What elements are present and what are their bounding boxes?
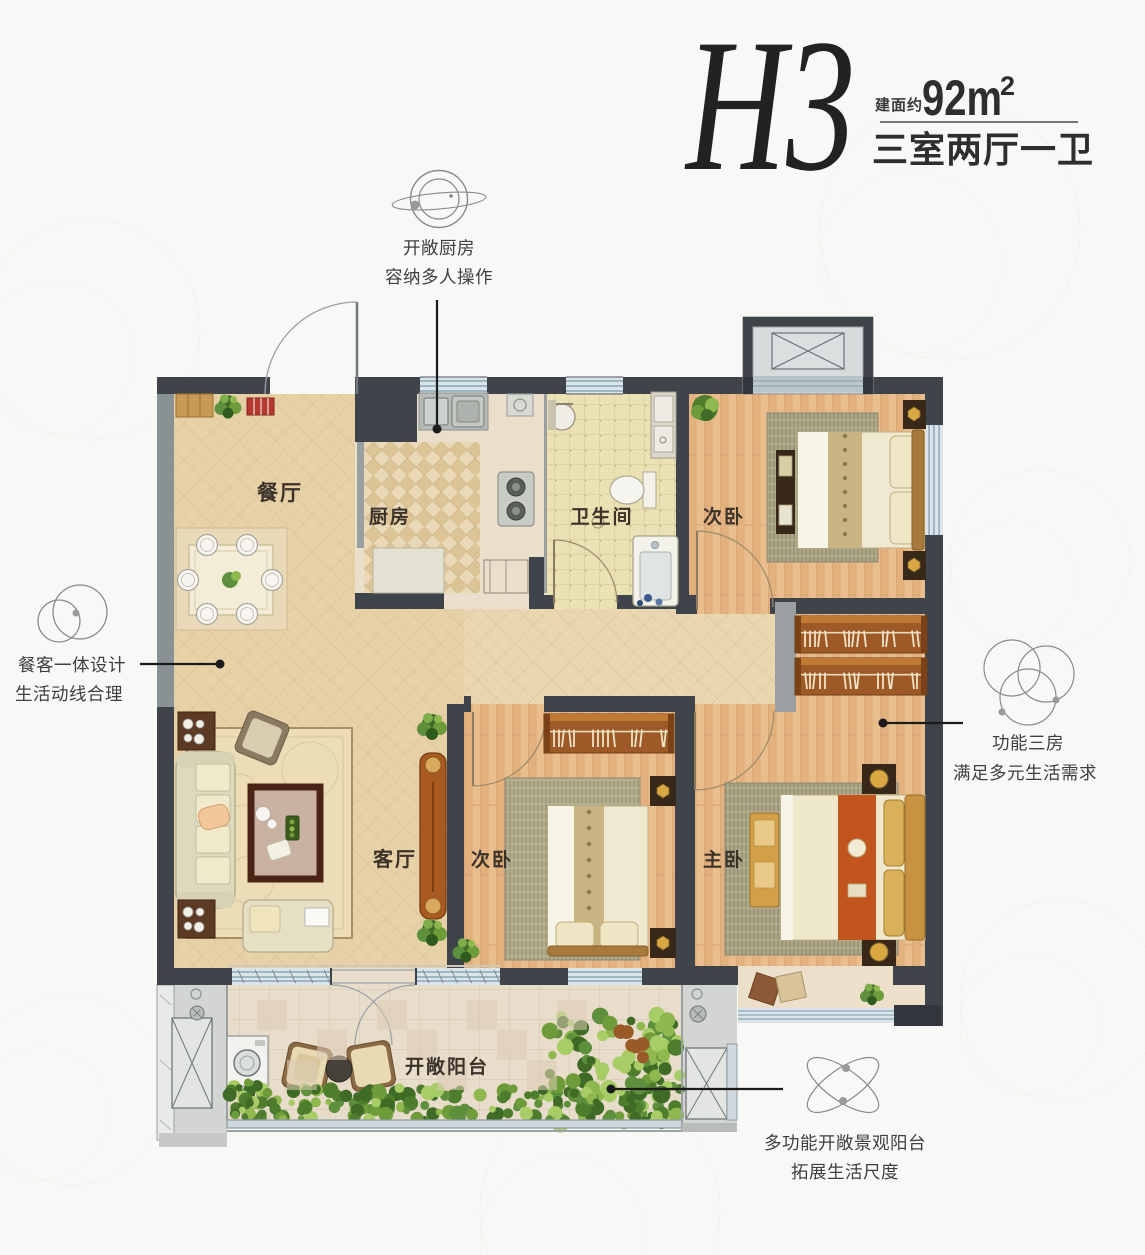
svg-text:餐厅: 餐厅	[257, 481, 303, 505]
svg-text:卫生间: 卫生间	[570, 505, 633, 528]
svg-text:开敞阳台: 开敞阳台	[405, 1055, 489, 1078]
svg-text:次卧: 次卧	[471, 848, 513, 871]
svg-text:客厅: 客厅	[372, 847, 417, 871]
svg-text:满足多元生活需求: 满足多元生活需求	[953, 763, 1097, 783]
svg-text:拓展生活尺度: 拓展生活尺度	[791, 1162, 899, 1182]
svg-text:多功能开敞景观阳台: 多功能开敞景观阳台	[764, 1133, 926, 1153]
svg-text:生活动线合理: 生活动线合理	[15, 684, 123, 704]
svg-text:功能三房: 功能三房	[992, 733, 1064, 753]
svg-text:开敞厨房: 开敞厨房	[403, 238, 475, 258]
svg-text:三室两厅一卫: 三室两厅一卫	[872, 129, 1094, 170]
svg-text:H3: H3	[684, 0, 855, 210]
svg-text:2: 2	[1000, 71, 1015, 101]
svg-text:主卧: 主卧	[703, 849, 745, 871]
svg-text:92m: 92m	[922, 70, 1002, 126]
svg-text:厨房: 厨房	[369, 505, 411, 528]
svg-text:建面约: 建面约	[875, 96, 923, 114]
svg-text:次卧: 次卧	[703, 505, 745, 528]
svg-text:容纳多人操作: 容纳多人操作	[385, 267, 493, 287]
svg-text:餐客一体设计: 餐客一体设计	[18, 655, 126, 675]
